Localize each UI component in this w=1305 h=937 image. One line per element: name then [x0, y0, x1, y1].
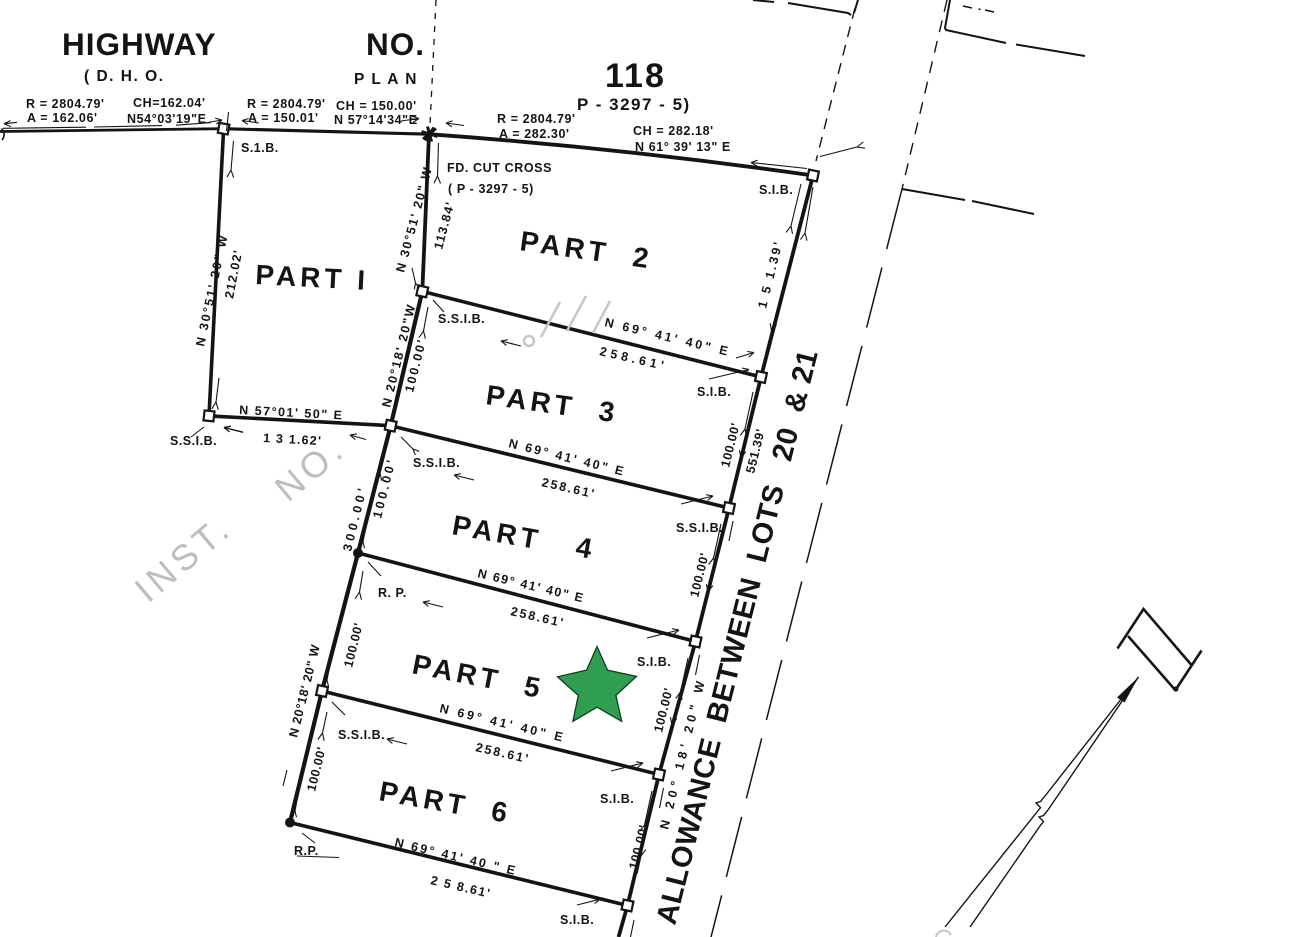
svg-text:S.I.B.: S.I.B. [759, 183, 793, 197]
svg-text:S.I.B.: S.I.B. [600, 792, 634, 806]
svg-text:CH = 282.18': CH = 282.18' [633, 124, 714, 138]
svg-text:P - 3297 - 5): P - 3297 - 5) [577, 95, 691, 114]
svg-text:118: 118 [605, 57, 666, 95]
svg-text:R = 2804.79': R = 2804.79' [26, 97, 105, 111]
svg-text:N 61° 39' 13" E: N 61° 39' 13" E [635, 140, 731, 154]
svg-text:NO.: NO. [366, 26, 425, 62]
svg-text:S.I.B.: S.I.B. [560, 913, 594, 927]
svg-text:CH=162.04': CH=162.04' [133, 96, 206, 110]
svg-text:A = 282.30': A = 282.30' [499, 127, 570, 141]
svg-text:S.1.B.: S.1.B. [241, 141, 279, 155]
svg-text:S.S.I.B.: S.S.I.B. [676, 521, 723, 535]
svg-text:CH = 150.00': CH = 150.00' [336, 99, 417, 113]
svg-text:P L A N: P L A N [354, 71, 418, 88]
svg-text:R = 2804.79': R = 2804.79' [247, 97, 326, 111]
svg-text:S.S.I.B.: S.S.I.B. [170, 434, 217, 448]
svg-text:S.S.I.B.: S.S.I.B. [438, 312, 485, 326]
svg-text:HIGHWAY: HIGHWAY [62, 26, 217, 62]
svg-text:S.I.B.: S.I.B. [697, 385, 731, 399]
svg-text:S.S.I.B.: S.S.I.B. [413, 456, 460, 470]
svg-text:PART I: PART I [255, 259, 370, 296]
svg-text:A = 162.06': A = 162.06' [27, 111, 98, 125]
svg-text:S.S.I.B.: S.S.I.B. [338, 728, 385, 742]
svg-text:R. P.: R. P. [378, 586, 407, 600]
svg-text:S.I.B.: S.I.B. [637, 655, 671, 669]
svg-text:FD. CUT CROSS: FD. CUT CROSS [447, 161, 552, 175]
svg-text:( P - 3297 - 5): ( P - 3297 - 5) [448, 182, 534, 196]
svg-text:R = 2804.79': R = 2804.79' [497, 112, 576, 126]
svg-text:( D. H. O.: ( D. H. O. [84, 68, 164, 85]
